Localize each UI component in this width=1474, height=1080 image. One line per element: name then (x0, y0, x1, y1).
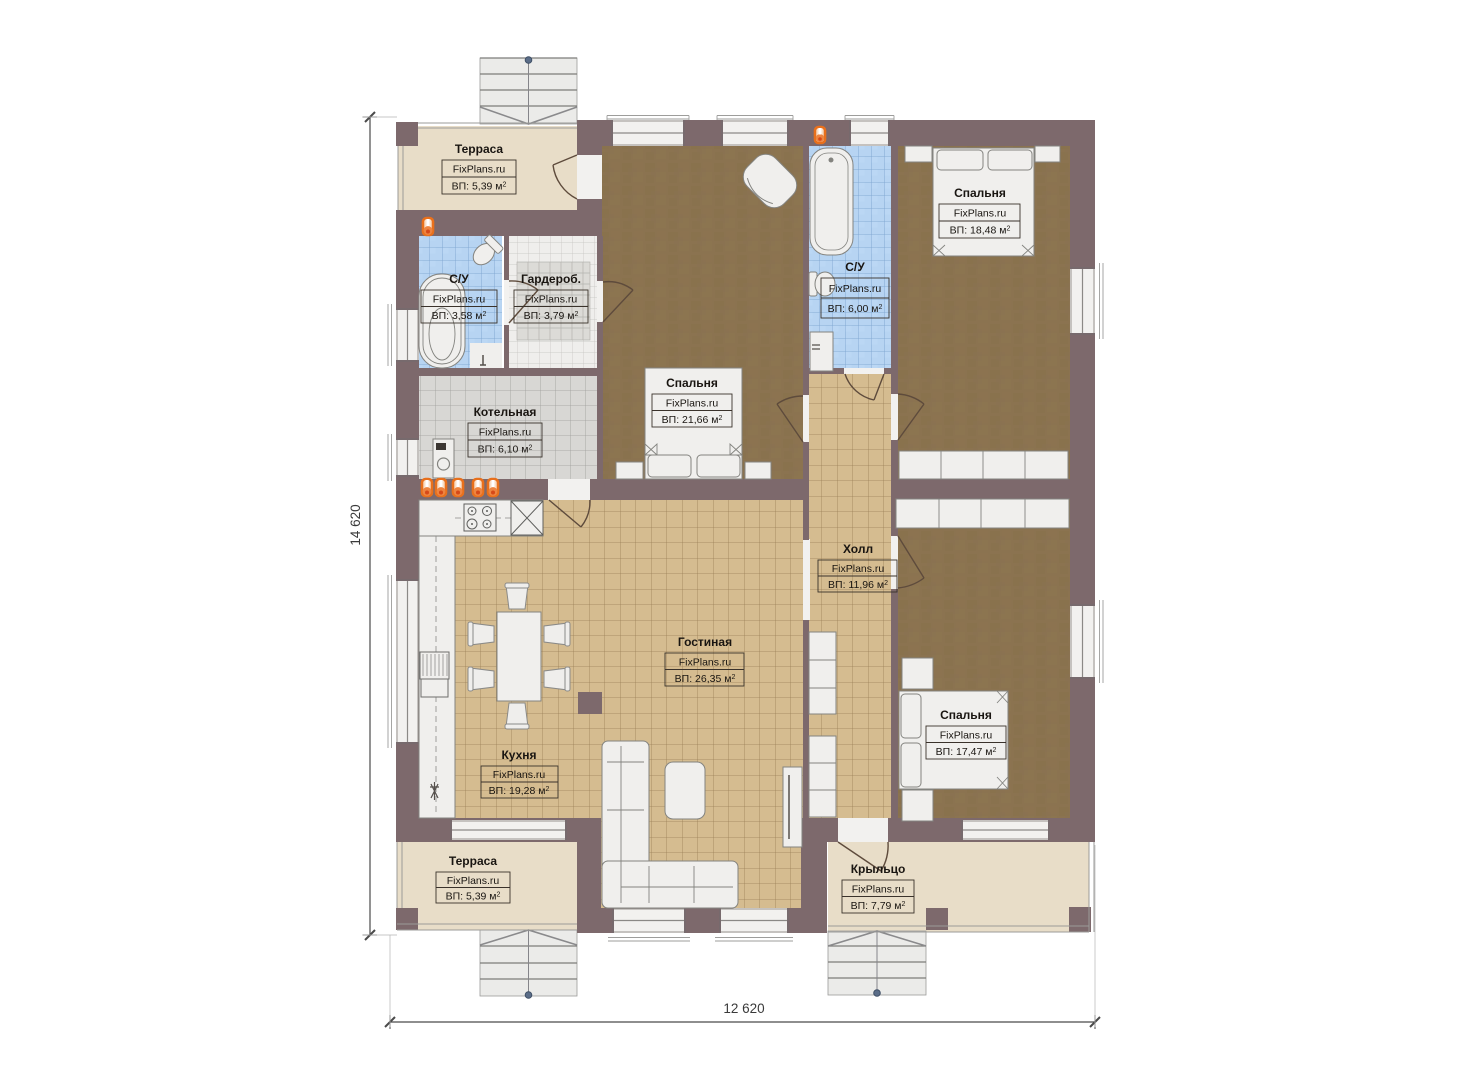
svg-text:FixPlans.ru: FixPlans.ru (666, 397, 719, 409)
svg-text:12 620: 12 620 (723, 1001, 764, 1016)
svg-text:FixPlans.ru: FixPlans.ru (525, 293, 578, 305)
svg-text:FixPlans.ru: FixPlans.ru (493, 769, 546, 781)
svg-text:Котельная: Котельная (474, 405, 537, 419)
svg-text:ВП: 3,79 м2: ВП: 3,79 м2 (524, 310, 579, 322)
svg-text:FixPlans.ru: FixPlans.ru (832, 563, 885, 575)
svg-text:FixPlans.ru: FixPlans.ru (954, 208, 1007, 220)
svg-text:FixPlans.ru: FixPlans.ru (453, 164, 506, 176)
svg-text:ВП: 21,66 м2: ВП: 21,66 м2 (662, 414, 723, 426)
svg-text:С/У: С/У (449, 272, 469, 286)
svg-text:ВП: 6,10 м2: ВП: 6,10 м2 (478, 444, 533, 456)
svg-text:FixPlans.ru: FixPlans.ru (852, 883, 905, 895)
svg-text:Спальня: Спальня (940, 708, 992, 722)
svg-text:FixPlans.ru: FixPlans.ru (679, 656, 732, 668)
svg-text:FixPlans.ru: FixPlans.ru (447, 875, 500, 887)
svg-text:Крыльцо: Крыльцо (851, 862, 906, 876)
svg-text:ВП: 26,35 м2: ВП: 26,35 м2 (675, 673, 736, 685)
svg-text:ВП: 19,28 м2: ВП: 19,28 м2 (489, 785, 550, 797)
svg-text:ВП: 18,48 м2: ВП: 18,48 м2 (950, 225, 1011, 237)
svg-text:ВП: 5,39 м2: ВП: 5,39 м2 (446, 890, 501, 902)
svg-text:Спальня: Спальня (666, 376, 718, 390)
svg-text:ВП: 7,79 м2: ВП: 7,79 м2 (851, 900, 906, 912)
svg-text:ВП: 3,58 м2: ВП: 3,58 м2 (432, 310, 487, 322)
svg-text:ВП: 5,39 м2: ВП: 5,39 м2 (452, 181, 507, 193)
svg-text:Гостиная: Гостиная (678, 635, 732, 649)
svg-text:FixPlans.ru: FixPlans.ru (829, 283, 882, 295)
svg-text:С/У: С/У (845, 260, 865, 274)
svg-text:FixPlans.ru: FixPlans.ru (940, 729, 993, 741)
svg-text:Гардероб.: Гардероб. (521, 272, 581, 286)
svg-text:ВП: 17,47 м2: ВП: 17,47 м2 (936, 746, 997, 758)
svg-text:FixPlans.ru: FixPlans.ru (433, 293, 486, 305)
svg-text:Спальня: Спальня (954, 186, 1006, 200)
svg-text:Кухня: Кухня (501, 748, 536, 762)
svg-text:ВП: 11,96 м2: ВП: 11,96 м2 (828, 579, 888, 591)
svg-text:Холл: Холл (843, 542, 873, 556)
svg-text:Терраса: Терраса (449, 854, 498, 868)
svg-text:14 620: 14 620 (348, 504, 363, 545)
svg-text:Терраса: Терраса (455, 142, 504, 156)
svg-text:FixPlans.ru: FixPlans.ru (479, 427, 532, 439)
svg-text:ВП: 6,00 м2: ВП: 6,00 м2 (828, 303, 883, 315)
